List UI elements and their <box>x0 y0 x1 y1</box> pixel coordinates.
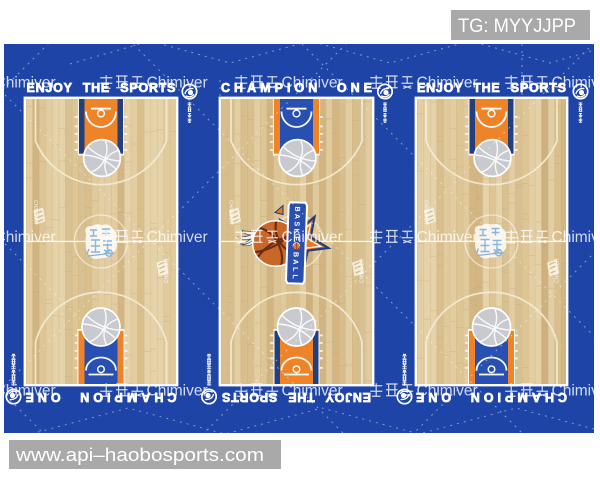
svg-text:Chimiver: Chimiver <box>417 383 478 400</box>
svg-text:A: A <box>293 214 302 220</box>
svg-text:CHIMIVER: CHIMIVER <box>228 200 234 225</box>
svg-text:CHIMIVER: CHIMIVER <box>555 258 561 283</box>
svg-text:A: A <box>291 259 300 265</box>
svg-text:Chimiver: Chimiver <box>282 229 343 246</box>
svg-text:CHIMIVER: CHIMIVER <box>32 200 38 225</box>
svg-text:Chimiver: Chimiver <box>417 229 478 246</box>
svg-text:Chimiver: Chimiver <box>417 75 478 92</box>
svg-text:Chimiver: Chimiver <box>552 383 600 400</box>
svg-text:CHIMIVER: CHIMIVER <box>164 258 170 283</box>
svg-text:TG: MYYJJPP: TG: MYYJJPP <box>458 15 576 37</box>
svg-text:Chimiver: Chimiver <box>552 75 600 92</box>
svg-text:Chimiver: Chimiver <box>147 75 208 92</box>
svg-text:Chimiver: Chimiver <box>282 383 343 400</box>
svg-text:Chimiver: Chimiver <box>282 75 343 92</box>
svg-text:CHIMIVER: CHIMIVER <box>423 200 429 225</box>
svg-text:Chimiver: Chimiver <box>147 229 208 246</box>
svg-text:S: S <box>293 221 302 226</box>
svg-text:Chimiver: Chimiver <box>147 383 208 400</box>
svg-text:B: B <box>292 252 301 258</box>
svg-text:CHIMIVER: CHIMIVER <box>360 258 366 283</box>
svg-text:Chimiver: Chimiver <box>552 229 600 246</box>
svg-text:www.api–haobosports.com: www.api–haobosports.com <box>15 445 264 465</box>
svg-text:Chimiver: Chimiver <box>0 229 56 246</box>
svg-text:Chimiver: Chimiver <box>0 383 56 400</box>
